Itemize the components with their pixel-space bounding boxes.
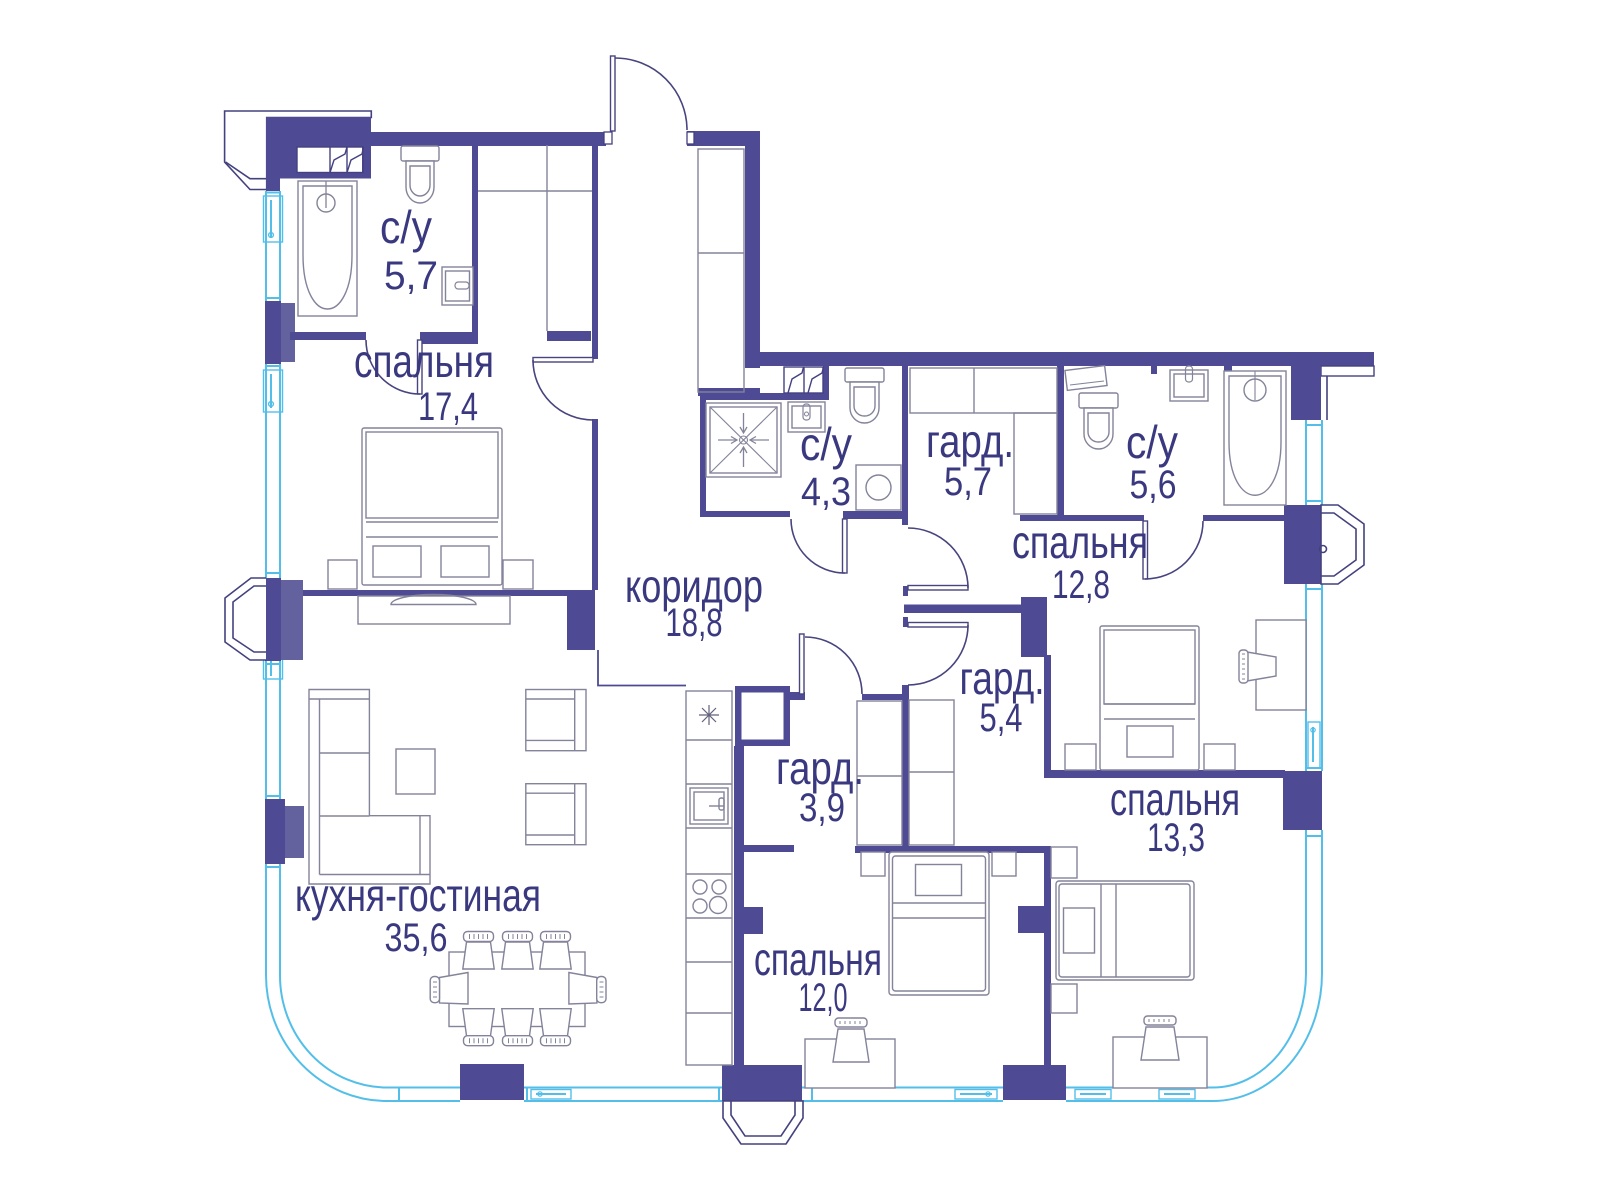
svg-text:35,6: 35,6: [385, 916, 448, 960]
svg-text:с/у: с/у: [380, 201, 432, 253]
svg-text:5,4: 5,4: [980, 696, 1023, 740]
svg-text:с/у: с/у: [800, 418, 852, 470]
svg-text:4,3: 4,3: [801, 470, 851, 514]
svg-text:18,8: 18,8: [666, 601, 723, 645]
svg-text:5,7: 5,7: [944, 460, 992, 504]
svg-text:спальня: спальня: [354, 335, 494, 387]
svg-text:5,7: 5,7: [384, 254, 438, 298]
svg-text:спальня: спальня: [1012, 516, 1148, 568]
svg-text:5,6: 5,6: [1130, 463, 1177, 507]
svg-text:13,3: 13,3: [1147, 816, 1205, 860]
svg-text:17,4: 17,4: [418, 385, 478, 429]
svg-text:кухня-гостиная: кухня-гостиная: [295, 869, 541, 921]
svg-text:12,8: 12,8: [1052, 563, 1110, 607]
svg-text:3,9: 3,9: [799, 786, 845, 830]
svg-text:с/у: с/у: [1126, 416, 1178, 468]
svg-text:12,0: 12,0: [799, 976, 848, 1020]
